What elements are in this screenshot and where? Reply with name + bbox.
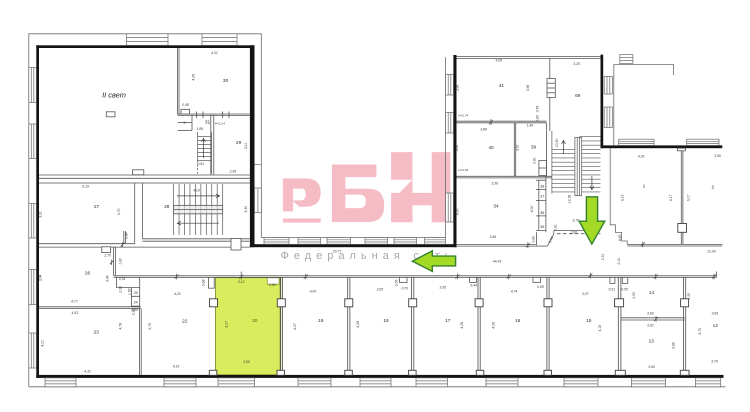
svg-text:23: 23 <box>94 329 100 335</box>
svg-text:2: 2 <box>711 185 714 191</box>
svg-text:2,10: 2,10 <box>617 258 621 266</box>
svg-text:Н=2,74: Н=2,74 <box>458 113 468 117</box>
svg-text:0,84: 0,84 <box>124 232 128 239</box>
svg-text:1: 1 <box>643 183 646 189</box>
svg-text:4,74: 4,74 <box>511 290 518 294</box>
svg-text:0,80: 0,80 <box>269 283 276 287</box>
svg-text:Н=2,14: Н=2,14 <box>215 122 225 126</box>
svg-text:0,44: 0,44 <box>470 284 477 288</box>
svg-text:4,28: 4,28 <box>460 322 464 329</box>
svg-text:38: 38 <box>540 185 544 189</box>
svg-text:1,80: 1,80 <box>119 258 123 265</box>
svg-text:6,75: 6,75 <box>148 323 152 330</box>
svg-text:15: 15 <box>586 318 592 324</box>
svg-text:0,91: 0,91 <box>119 277 126 281</box>
svg-text:10,50: 10,50 <box>555 139 559 148</box>
svg-text:6,27: 6,27 <box>293 323 297 330</box>
svg-text:3,92: 3,92 <box>647 324 654 328</box>
svg-text:2,38: 2,38 <box>228 170 236 174</box>
svg-text:4,28: 4,28 <box>491 322 495 329</box>
svg-text:3,95: 3,95 <box>376 288 383 292</box>
svg-text:3,79: 3,79 <box>711 359 718 363</box>
svg-text:0,82: 0,82 <box>532 236 536 243</box>
svg-text:4,00: 4,00 <box>310 290 317 294</box>
svg-text:Н=2,64: Н=2,64 <box>458 168 468 172</box>
svg-text:0,51: 0,51 <box>608 288 615 292</box>
svg-text:27: 27 <box>94 204 100 210</box>
svg-text:3,70: 3,70 <box>117 208 121 215</box>
svg-text:II свет: II свет <box>102 91 126 100</box>
svg-text:4,18: 4,18 <box>598 325 602 332</box>
svg-text:69: 69 <box>575 93 581 99</box>
svg-text:20,77: 20,77 <box>332 250 342 254</box>
svg-text:6,13: 6,13 <box>620 195 624 202</box>
svg-text:5: 5 <box>184 121 186 125</box>
svg-text:3,25: 3,25 <box>573 62 580 66</box>
svg-text:18: 18 <box>383 318 389 324</box>
svg-text:0,61: 0,61 <box>554 224 558 231</box>
svg-text:3,66: 3,66 <box>711 311 718 315</box>
svg-text:20: 20 <box>252 318 258 324</box>
svg-text:34: 34 <box>493 203 499 209</box>
svg-text:4,28: 4,28 <box>356 321 360 328</box>
svg-text:3,95: 3,95 <box>439 286 446 290</box>
svg-text:3,89: 3,89 <box>647 311 654 315</box>
svg-text:5,48: 5,48 <box>490 235 497 239</box>
svg-text:31: 31 <box>205 119 211 125</box>
svg-text:0,59: 0,59 <box>536 106 540 113</box>
svg-text:8,49: 8,49 <box>618 235 622 242</box>
svg-text:4,19: 4,19 <box>173 365 180 369</box>
svg-text:3,88: 3,88 <box>480 128 487 132</box>
svg-text:19: 19 <box>318 318 324 324</box>
svg-text:12,09: 12,09 <box>707 250 716 254</box>
svg-text:4,08: 4,08 <box>495 59 502 63</box>
svg-text:3,12: 3,12 <box>238 280 245 284</box>
svg-text:4,00: 4,00 <box>530 206 534 213</box>
svg-text:3,96: 3,96 <box>456 85 460 92</box>
svg-text:4,20: 4,20 <box>174 292 181 296</box>
svg-text:44,43: 44,43 <box>493 260 502 264</box>
svg-text:2,31: 2,31 <box>601 254 605 262</box>
svg-text:0,55: 0,55 <box>621 288 628 292</box>
svg-text:14: 14 <box>649 290 655 296</box>
svg-text:6,27: 6,27 <box>224 321 228 328</box>
svg-text:5,38: 5,38 <box>491 182 498 186</box>
svg-text:41: 41 <box>499 83 505 89</box>
svg-text:0,68: 0,68 <box>537 285 544 289</box>
svg-text:2,38: 2,38 <box>131 309 135 317</box>
svg-text:0,91: 0,91 <box>533 157 537 164</box>
svg-text:25: 25 <box>134 291 138 295</box>
svg-text:12,36: 12,36 <box>568 195 572 204</box>
svg-text:3,46: 3,46 <box>106 275 110 282</box>
svg-text:1,55: 1,55 <box>687 293 691 300</box>
svg-text:4,29: 4,29 <box>638 155 645 159</box>
svg-text:6,17: 6,17 <box>687 195 691 202</box>
svg-text:4,19: 4,19 <box>193 188 200 192</box>
svg-text:40: 40 <box>488 145 494 151</box>
svg-text:4,70: 4,70 <box>698 328 702 335</box>
svg-text:1,92: 1,92 <box>127 288 131 295</box>
svg-text:36: 36 <box>540 211 544 215</box>
svg-text:Федеральная: Федеральная <box>281 250 405 262</box>
svg-text:3,68: 3,68 <box>672 342 676 349</box>
svg-text:3,32: 3,32 <box>455 145 459 152</box>
svg-text:4,00: 4,00 <box>456 209 460 216</box>
svg-text:12: 12 <box>713 323 719 329</box>
svg-text:28: 28 <box>164 204 170 210</box>
svg-text:6,19: 6,19 <box>82 185 89 189</box>
svg-text:2,38: 2,38 <box>119 286 123 294</box>
svg-text:13: 13 <box>649 338 655 344</box>
svg-text:4,77: 4,77 <box>71 300 78 304</box>
svg-text:3,11: 3,11 <box>244 143 248 149</box>
svg-text:4,93: 4,93 <box>71 311 78 315</box>
svg-text:0,48: 0,48 <box>182 103 189 107</box>
svg-text:3,30: 3,30 <box>244 206 248 213</box>
svg-text:4,32: 4,32 <box>211 51 218 55</box>
svg-text:0,70: 0,70 <box>401 286 408 290</box>
svg-text:6,17: 6,17 <box>669 195 673 202</box>
svg-text:2,70: 2,70 <box>103 253 111 257</box>
svg-text:3,96: 3,96 <box>526 85 530 92</box>
svg-text:1,89: 1,89 <box>196 127 203 131</box>
svg-text:39: 39 <box>531 145 537 151</box>
svg-text:3,31: 3,31 <box>39 211 43 218</box>
svg-text:3,52: 3,52 <box>516 145 520 152</box>
svg-text:17: 17 <box>445 318 451 324</box>
svg-text:0,81: 0,81 <box>197 162 204 166</box>
svg-text:24: 24 <box>134 301 138 305</box>
svg-text:4,78: 4,78 <box>118 323 122 330</box>
svg-text:3,96: 3,96 <box>243 360 250 364</box>
svg-text:0,68: 0,68 <box>201 279 205 286</box>
svg-text:26: 26 <box>85 270 91 276</box>
svg-text:22: 22 <box>182 319 188 325</box>
svg-text:3,90: 3,90 <box>648 365 655 369</box>
svg-text:4,21: 4,21 <box>41 340 45 347</box>
svg-text:16: 16 <box>515 318 521 324</box>
svg-text:3,95: 3,95 <box>714 154 721 158</box>
svg-text:37: 37 <box>540 194 544 198</box>
svg-text:3,97: 3,97 <box>582 292 589 296</box>
svg-text:2,60: 2,60 <box>569 230 577 234</box>
svg-text:0,55: 0,55 <box>395 279 399 286</box>
svg-text:3,94: 3,94 <box>38 275 42 282</box>
svg-text:1,98: 1,98 <box>526 124 533 128</box>
svg-text:4,32: 4,32 <box>84 370 91 374</box>
svg-text:0,66: 0,66 <box>536 115 540 122</box>
svg-text:4,29: 4,29 <box>192 74 196 81</box>
svg-text:29: 29 <box>236 140 242 146</box>
svg-text:35: 35 <box>540 225 544 229</box>
svg-text:2,50: 2,50 <box>632 292 636 300</box>
svg-text:30: 30 <box>223 78 229 84</box>
